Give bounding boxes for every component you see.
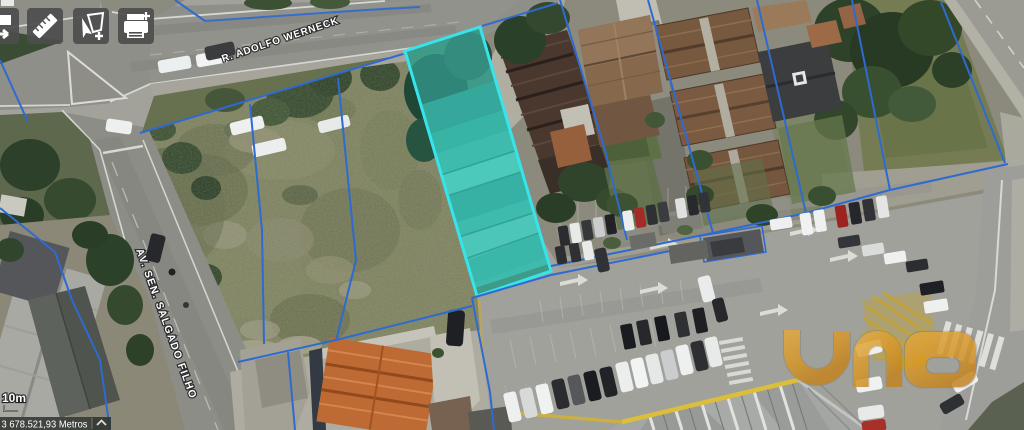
svg-text:10m: 10m: [2, 391, 26, 405]
svg-text:3 678.521,93 Metros: 3 678.521,93 Metros: [2, 419, 88, 430]
